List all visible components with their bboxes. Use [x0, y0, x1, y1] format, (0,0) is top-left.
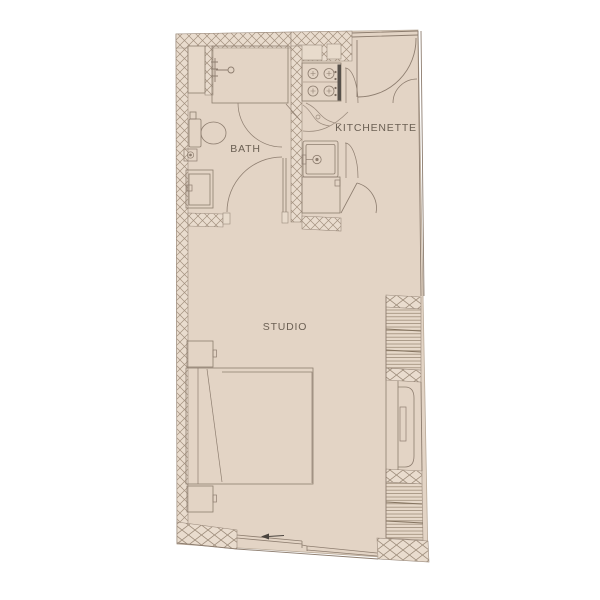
- bath-door-jamb-left: [223, 213, 230, 224]
- corridor-bottom-wall: [302, 216, 341, 231]
- right-wall-band-1: [386, 295, 421, 309]
- flue-jamb-right: [327, 44, 341, 59]
- bath-bottom-wall: [188, 213, 223, 227]
- middle-wall: [291, 46, 302, 222]
- louver-vent-lower: [386, 482, 423, 540]
- louver-vent-upper: [386, 307, 421, 370]
- bottom-right-pier: [377, 538, 429, 562]
- bath-door-jamb-right: [282, 212, 288, 223]
- wall-shaft: [188, 46, 205, 93]
- floor-plan-page: BATH KITCHENETTE STUDIO: [0, 0, 600, 600]
- bath-label: BATH: [230, 143, 260, 155]
- kitchenette-label: KITCHENETTE: [335, 122, 417, 134]
- right-wall-band-3: [386, 469, 422, 484]
- oven-handle: [338, 65, 342, 101]
- right-wall-band-2: [386, 368, 421, 382]
- studio-label: STUDIO: [263, 321, 307, 333]
- floor-plan-drawing: BATH KITCHENETTE STUDIO: [0, 0, 600, 600]
- top-wall: [176, 32, 291, 48]
